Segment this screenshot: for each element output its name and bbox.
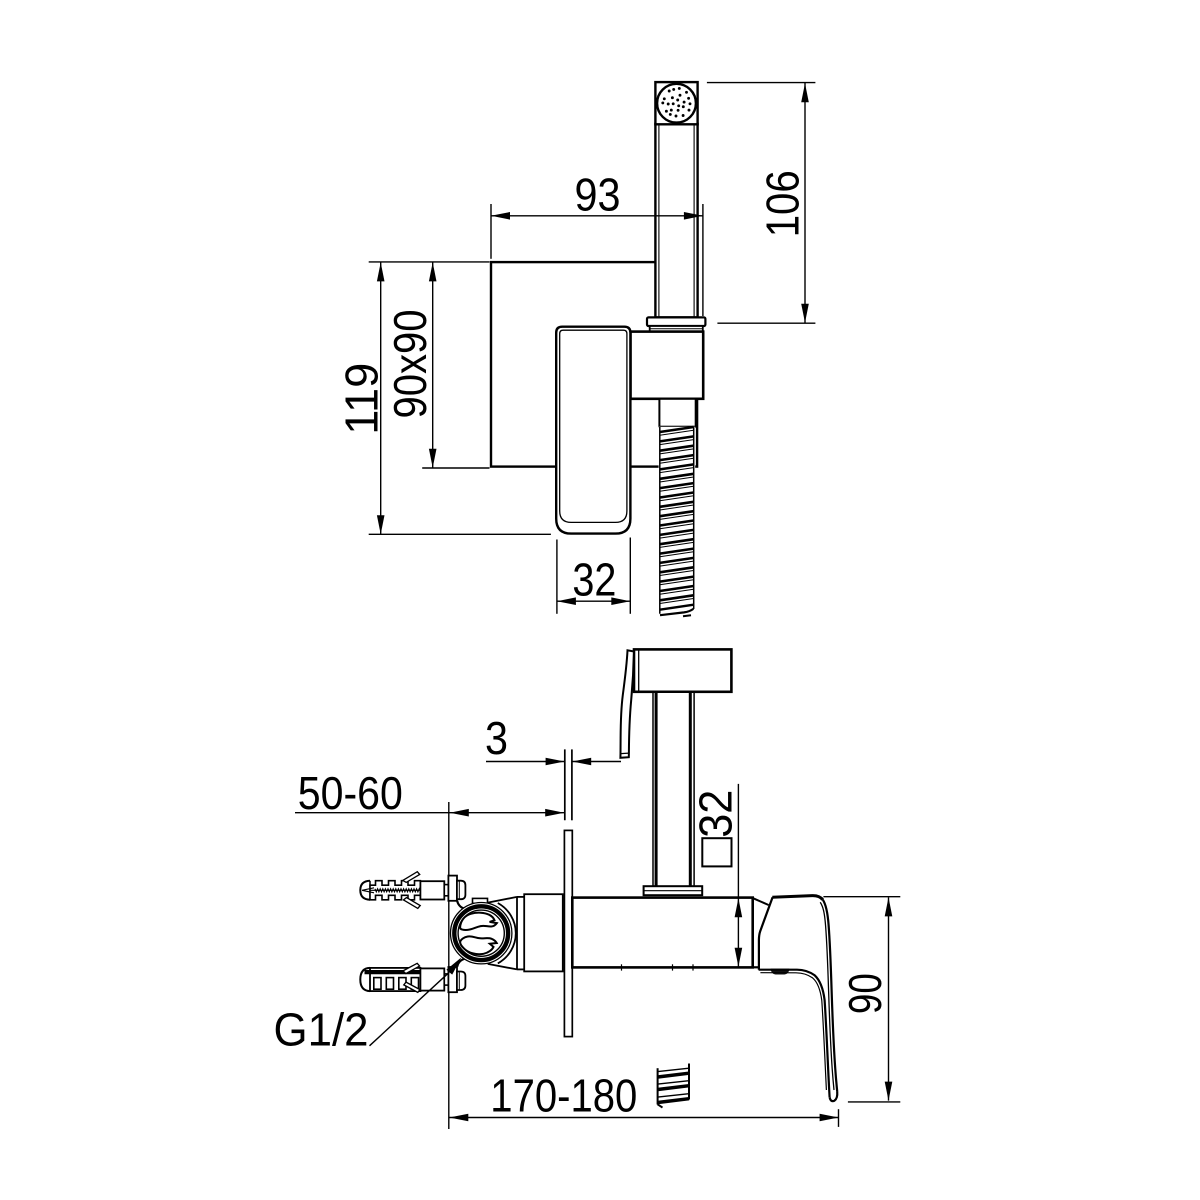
svg-text:3: 3 — [485, 712, 508, 764]
svg-text:106: 106 — [757, 170, 809, 237]
svg-text:90: 90 — [839, 973, 891, 1014]
svg-text:32: 32 — [690, 790, 742, 838]
svg-text:G1/2: G1/2 — [274, 1004, 369, 1056]
svg-text:119: 119 — [336, 363, 388, 435]
svg-text:170-180: 170-180 — [490, 1069, 637, 1121]
svg-text:93: 93 — [575, 169, 621, 221]
svg-text:50-60: 50-60 — [298, 767, 403, 819]
svg-text:32: 32 — [572, 553, 616, 605]
svg-text:90x90: 90x90 — [384, 310, 436, 419]
